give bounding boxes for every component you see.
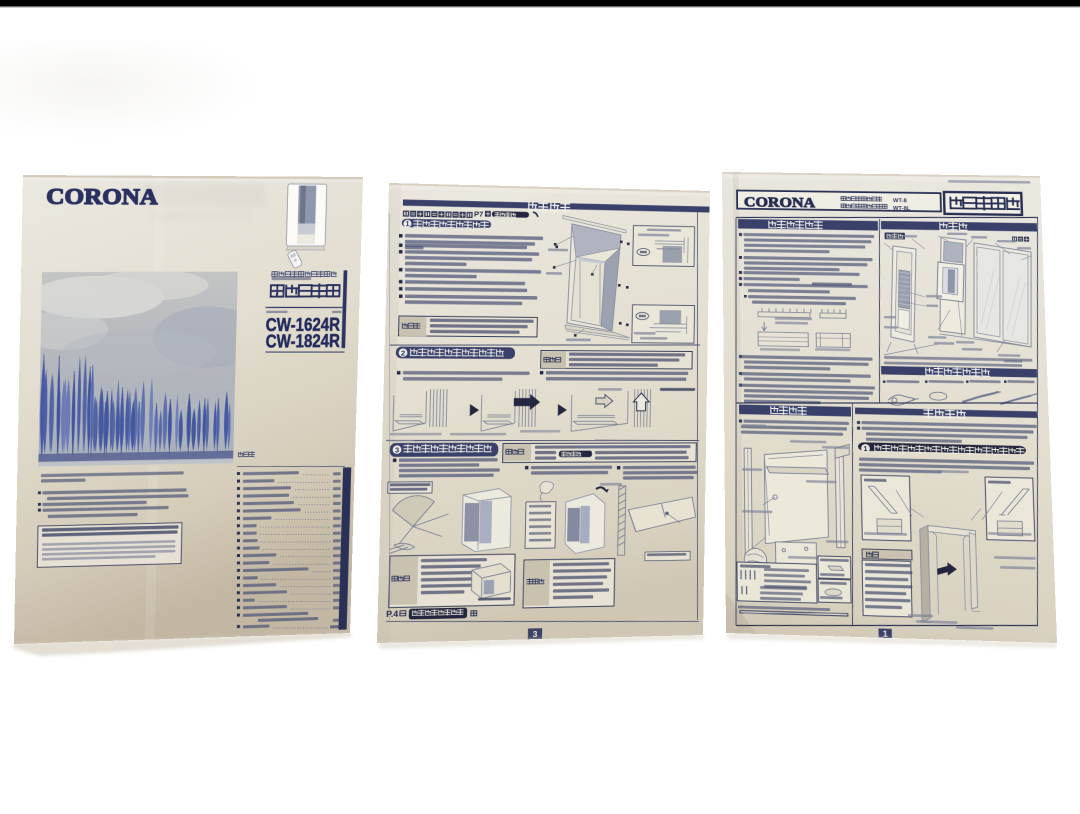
svg-text:P7: P7 [474,210,483,219]
svg-text:1: 1 [863,445,867,454]
svg-text:1: 1 [405,219,409,228]
svg-text:CW-1824R: CW-1824R [265,332,340,353]
svg-text:WT-8L: WT-8L [893,206,911,212]
svg-text:3: 3 [533,629,538,639]
svg-text:P.4: P.4 [386,609,399,619]
svg-text:CORONA: CORONA [46,184,158,210]
svg-text:1: 1 [883,629,889,639]
svg-text:WT-8: WT-8 [893,198,907,204]
svg-text:CORONA: CORONA [744,194,816,210]
